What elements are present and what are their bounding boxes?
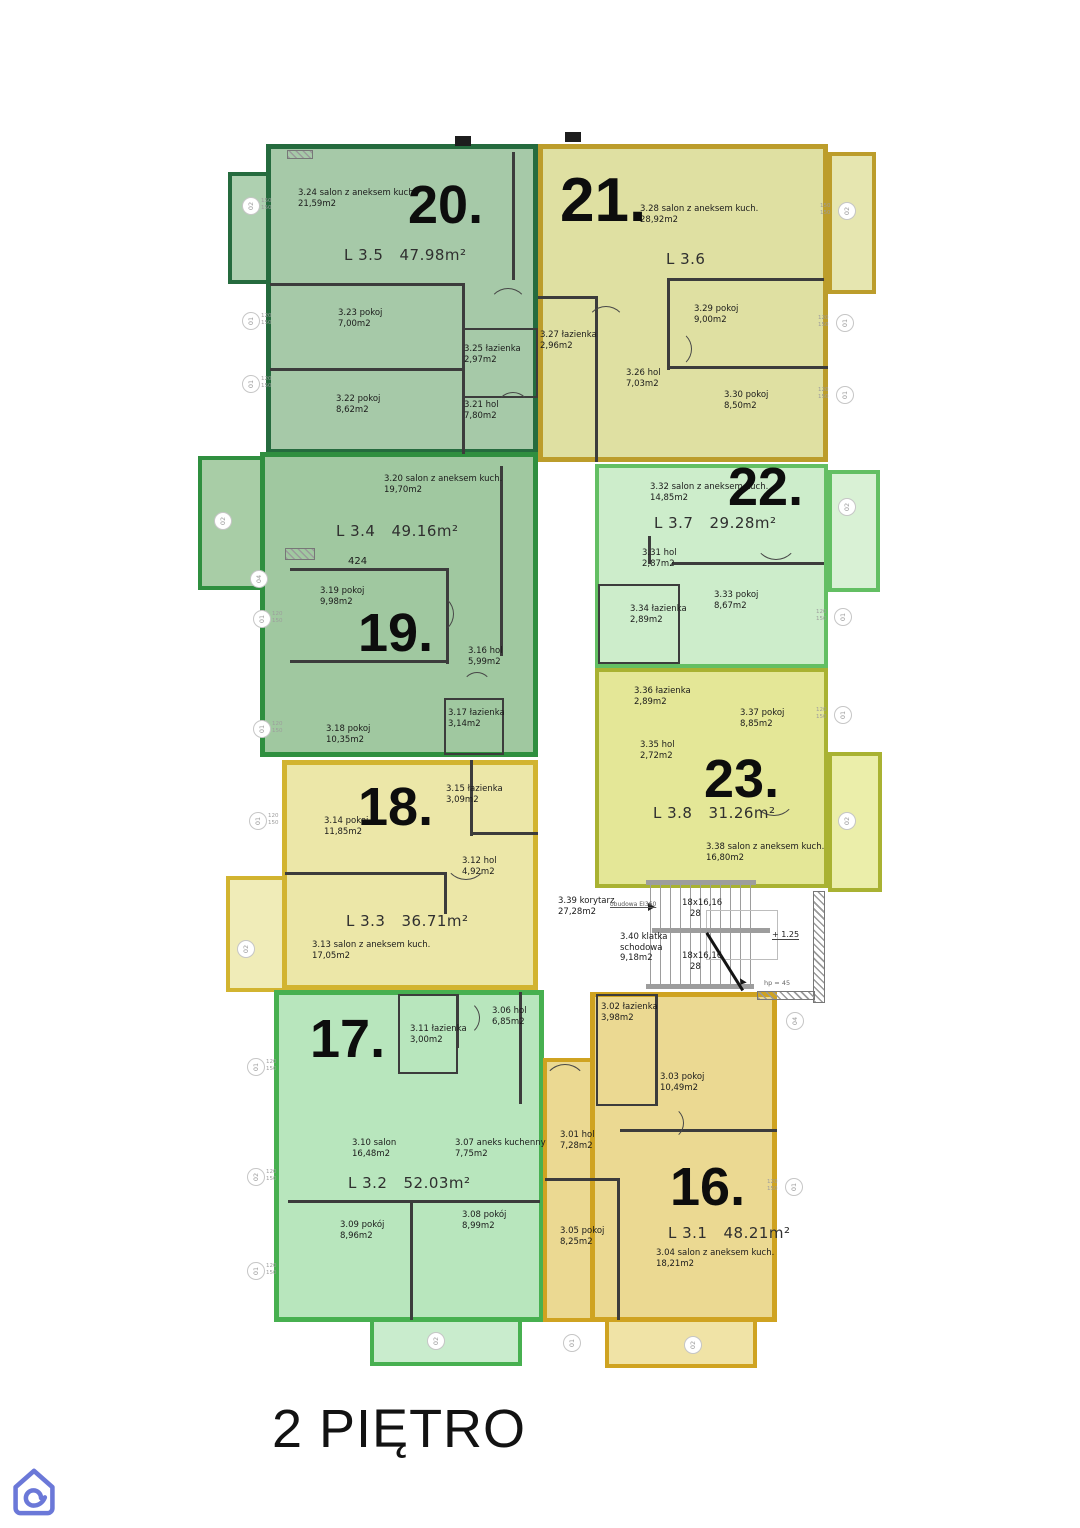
room-label: 3.27 łazienka2,96m2 (540, 330, 597, 351)
window-dimensions: 120150 (261, 313, 272, 327)
door-swing-arc (543, 1064, 587, 1108)
room-label: 3.21 hol7,80m2 (464, 400, 499, 421)
window-marker: 02 (838, 812, 856, 830)
room-label: 3.02 łazienka3,98m2 (601, 1002, 658, 1023)
apartment-17-number: 17. (310, 1012, 385, 1066)
interior-wall (617, 1178, 620, 1320)
window-dimensions: 120150 (816, 707, 827, 721)
apartment-23-number: 23. (704, 752, 779, 806)
interior-wall (270, 283, 465, 286)
room-label: 3.01 hol7,28m2 (560, 1130, 595, 1151)
window-marker: 02 (427, 1332, 445, 1350)
handrail-note: hp = 45 (764, 979, 790, 987)
window-marker: 01 (563, 1334, 581, 1352)
interior-wall (672, 562, 824, 565)
window-marker: 01 (247, 1058, 265, 1076)
apartment-16-number: 16. (670, 1160, 745, 1214)
window-marker: 01 (242, 312, 260, 330)
interior-wall (270, 368, 464, 371)
window-marker: 01 (247, 1262, 265, 1280)
room-label: 3.23 pokoj7,00m2 (338, 308, 382, 329)
interior-wall (285, 872, 447, 875)
apartment-17-unit-label: L 3.252.03m² (348, 1174, 471, 1192)
room-label: 3.34 łazienka2,89m2 (630, 604, 687, 625)
room-label: 3.11 łazienka3,00m2 (410, 1024, 467, 1045)
room-label: 3.05 pokoj8,25m2 (560, 1226, 604, 1247)
room-label: 3.25 łazienka2,97m2 (464, 344, 521, 365)
shaft-wall-hatch (813, 891, 825, 1003)
window-marker: 04 (786, 1012, 804, 1030)
room-label: 3.08 pokój8,99m2 (462, 1210, 506, 1231)
room-label: 3.31 hol2,87m2 (642, 548, 677, 569)
window-marker: 01 (253, 610, 271, 628)
apartment-22-number: 22. (728, 460, 803, 514)
window-marker: 02 (684, 1336, 702, 1354)
room-label: 3.17 łazienka3,14m2 (448, 708, 505, 729)
room-label: 3.18 pokoj10,35m2 (326, 724, 370, 745)
staircase-label: 3.40 klatkaschodowa9,18m2 (620, 932, 667, 964)
floor-plan-canvas: 20. 21. 22. 19. 23. 18. 17. 16. L 3.547.… (0, 0, 1080, 1528)
window-marker: 02 (247, 1168, 265, 1186)
interior-wall (288, 1200, 540, 1203)
apartment-20-extension (228, 172, 270, 284)
room-label: 3.15 łazienka3,09m2 (446, 784, 503, 805)
apartment-19-number: 19. (358, 606, 433, 660)
apartment-20-unit-label: L 3.547.98m² (344, 246, 467, 264)
dimension-tick (455, 136, 471, 146)
enclosure-note: obudowa EI360 (610, 901, 656, 908)
room-label: 3.20 salon z aneksem kuch.19,70m2 (384, 474, 502, 495)
room-label: 3.03 pokoj10,49m2 (660, 1072, 704, 1093)
room-label: 3.06 hol6,85m2 (492, 1006, 527, 1027)
apartment-20-number: 20. (408, 178, 483, 232)
interior-wall (512, 152, 515, 280)
room-label: 3.38 salon z aneksem kuch.16,80m2 (706, 842, 824, 863)
room-label: 3.24 salon z aneksem kuch.21,59m2 (298, 188, 416, 209)
apartment-21-extension (828, 152, 876, 294)
room-label: 3.04 salon z aneksem kuch.18,21m2 (656, 1248, 774, 1269)
door-swing-arc (496, 392, 530, 426)
window-marker: 04 (250, 570, 268, 588)
door-swing-arc (462, 672, 492, 702)
interior-wall (470, 832, 538, 835)
room-label: 3.26 hol7,03m2 (626, 368, 661, 389)
door-swing-arc (488, 288, 528, 328)
room-label: 3.09 pokój8,96m2 (340, 1220, 384, 1241)
window-marker: 01 (242, 375, 260, 393)
room-label: 3.37 pokoj8,85m2 (740, 708, 784, 729)
window-marker: 01 (249, 812, 267, 830)
apartment-21-unit-label: L 3.6 (666, 250, 721, 268)
dim-424-label: 424 (348, 556, 367, 567)
room-label: 3.36 łazienka2,89m2 (634, 686, 691, 707)
window-marker: 02 (242, 197, 260, 215)
window-dimensions: 150150 (820, 203, 831, 217)
room-label: 3.13 salon z aneksem kuch.17,05m2 (312, 940, 430, 961)
stairs-landing-top (646, 880, 756, 885)
window-marker: 01 (836, 314, 854, 332)
wall-hatch (287, 150, 313, 159)
window-marker: 02 (214, 512, 232, 530)
apartment-19-unit-label: L 3.449.16m² (336, 522, 459, 540)
window-dimensions: 120150 (818, 387, 829, 401)
room-label: 3.35 hol2,72m2 (640, 740, 675, 761)
room-label: 3.10 salon16,48m2 (352, 1138, 396, 1159)
door-swing-arc (654, 330, 692, 368)
window-dimensions: 120150 (816, 609, 827, 623)
interior-wall (545, 1178, 619, 1181)
room-label: 3.07 aneks kuchenny7,75m2 (455, 1138, 546, 1159)
window-marker: 01 (834, 706, 852, 724)
interior-wall (667, 278, 824, 281)
dimension-tick (565, 132, 581, 142)
window-marker: 02 (838, 498, 856, 516)
room-label: 3.12 hol4,92m2 (462, 856, 497, 877)
window-dimensions: 120150 (261, 376, 272, 390)
window-dimensions: 120150 (272, 611, 283, 625)
corridor-label: 3.39 korytarz27,28m2 (558, 896, 614, 917)
room-label: 3.33 pokoj8,67m2 (714, 590, 758, 611)
interior-wall (620, 1129, 777, 1132)
window-dimensions: 120150 (266, 1169, 277, 1183)
interior-wall (410, 1200, 413, 1320)
stair-flight-lower-label: 18x16,1628 (682, 951, 722, 972)
shaft-wall-hatch (757, 991, 815, 1000)
window-marker: 01 (253, 720, 271, 738)
room-label: 3.16 hol5,99m2 (468, 646, 503, 667)
door-swing-arc (650, 1106, 684, 1140)
wall-hatch (285, 548, 315, 560)
window-marker: 01 (836, 386, 854, 404)
window-dimensions: 120150 (268, 813, 279, 827)
apartment-21-number: 21. (560, 170, 646, 232)
interior-wall (444, 872, 447, 914)
window-marker: 01 (834, 608, 852, 626)
room-label: 3.28 salon z aneksem kuch.28,92m2 (640, 204, 758, 225)
window-dimensions: 120150 (818, 315, 829, 329)
window-dimensions: 120150 (266, 1263, 277, 1277)
room-label: 3.22 pokoj8,62m2 (336, 394, 380, 415)
window-marker: 02 (237, 940, 255, 958)
apartment-18-extension (226, 876, 286, 992)
stairs-landing-mid (652, 928, 770, 933)
apartment-16-balcony (605, 1318, 757, 1368)
interior-wall (667, 366, 828, 369)
apartment-17-balcony (370, 1318, 522, 1366)
interior-wall (538, 296, 598, 299)
window-marker: 02 (838, 202, 856, 220)
window-dimensions: 150150 (261, 198, 272, 212)
window-dimensions: 120150 (272, 721, 283, 735)
interior-wall (290, 568, 449, 571)
floor-title: 2 PIĘTRO (272, 1398, 526, 1460)
window-marker: 01 (785, 1178, 803, 1196)
house-logo-icon (8, 1466, 60, 1522)
window-dimensions: 120150 (266, 1059, 277, 1073)
room-label: 3.29 pokoj9,00m2 (694, 304, 738, 325)
apartment-16-unit-label: L 3.148.21m² (668, 1224, 791, 1242)
level-marker: + 1.25 (772, 930, 799, 940)
apartment-18-unit-label: L 3.336.71m² (346, 912, 469, 930)
stair-flight-upper-label: 18x16,1628 (682, 898, 722, 919)
apartment-22-extension (828, 470, 880, 592)
room-label: 3.30 pokoj8,50m2 (724, 390, 768, 411)
apartment-18-number: 18. (358, 780, 433, 834)
window-dimensions: 120150 (767, 1179, 778, 1193)
